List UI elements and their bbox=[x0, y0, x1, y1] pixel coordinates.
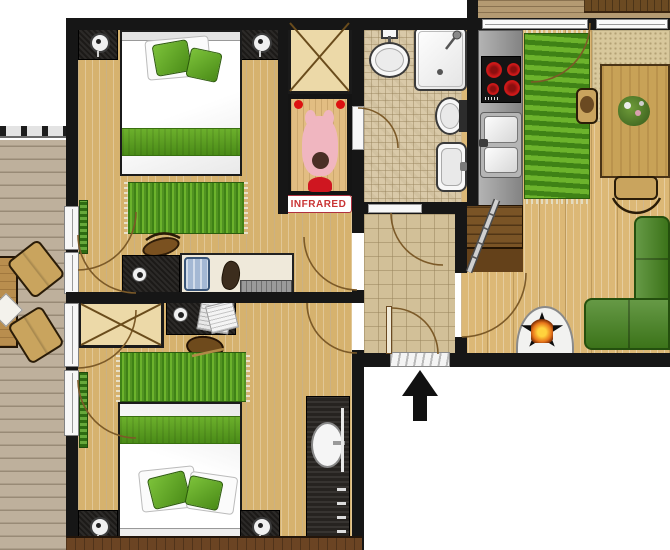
door-arc bbox=[392, 308, 438, 354]
desk-chair-stick bbox=[192, 349, 224, 356]
door-arc bbox=[304, 237, 357, 290]
shower-head-icon bbox=[453, 31, 461, 39]
desk-chair-back bbox=[146, 233, 180, 240]
door-arc bbox=[78, 380, 136, 438]
door-arc bbox=[462, 273, 526, 337]
door-arc bbox=[391, 213, 443, 265]
door-arc bbox=[78, 310, 136, 368]
door-arc bbox=[307, 303, 357, 353]
door-arc bbox=[358, 108, 398, 148]
door-swing-overlay bbox=[0, 0, 670, 550]
apartment-floorplan: INFRARED bbox=[0, 0, 670, 550]
door-arc bbox=[78, 212, 136, 270]
stairs-handrail bbox=[469, 200, 497, 272]
dining-chair-back bbox=[613, 198, 660, 213]
curtain-arc bbox=[531, 23, 590, 82]
